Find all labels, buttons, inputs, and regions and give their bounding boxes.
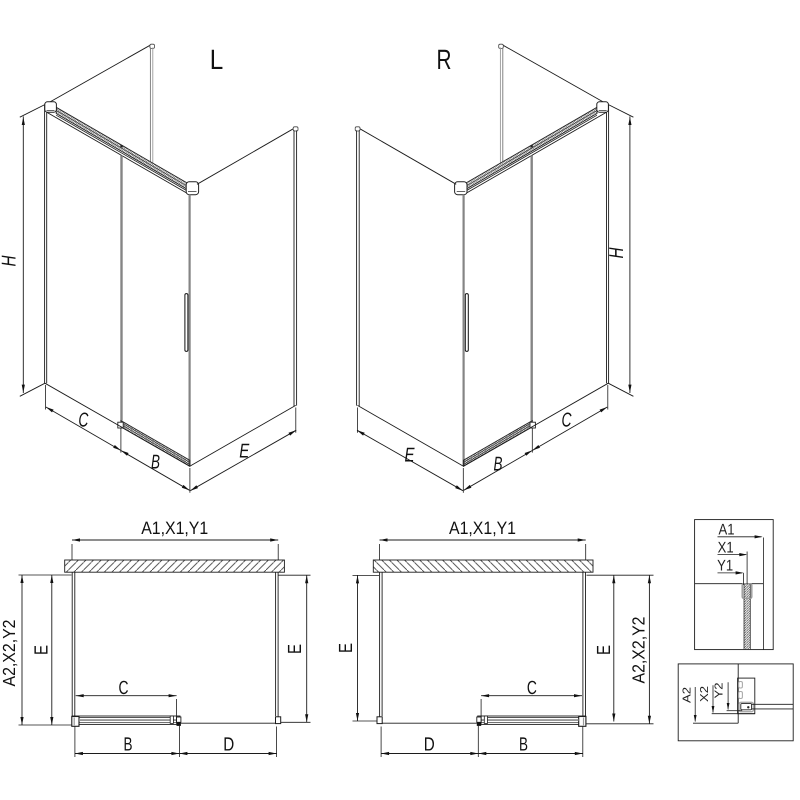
svg-text:E: E	[285, 644, 306, 654]
svg-text:D: D	[424, 735, 435, 756]
svg-text:E: E	[405, 445, 415, 467]
svg-text:H: H	[0, 255, 21, 266]
svg-text:R: R	[437, 44, 452, 75]
svg-text:H: H	[606, 247, 628, 258]
svg-text:D: D	[223, 735, 234, 756]
svg-text:B: B	[519, 735, 528, 756]
svg-text:A1,X1,Y1: A1,X1,Y1	[141, 518, 208, 538]
svg-text:Y1: Y1	[717, 558, 733, 575]
svg-text:A1: A1	[719, 522, 735, 539]
svg-text:A2: A2	[682, 687, 694, 703]
svg-text:Y2: Y2	[714, 683, 726, 699]
svg-text:A2,X2,Y2: A2,X2,Y2	[629, 617, 649, 684]
svg-text:C: C	[527, 678, 537, 699]
svg-text:A2,X2,Y2: A2,X2,Y2	[0, 620, 19, 687]
svg-text:B: B	[494, 454, 503, 476]
svg-text:E: E	[31, 645, 52, 655]
svg-text:E: E	[239, 441, 249, 463]
svg-text:B: B	[151, 452, 160, 474]
svg-text:E: E	[336, 643, 357, 653]
svg-text:X1: X1	[718, 539, 734, 556]
svg-text:L: L	[210, 44, 224, 75]
svg-text:C: C	[562, 410, 572, 432]
svg-text:E: E	[594, 645, 615, 655]
svg-text:B: B	[124, 735, 133, 756]
svg-text:A1,X1,Y1: A1,X1,Y1	[449, 518, 516, 538]
svg-text:C: C	[78, 410, 88, 432]
svg-text:X2: X2	[699, 686, 711, 702]
svg-text:C: C	[119, 678, 129, 699]
